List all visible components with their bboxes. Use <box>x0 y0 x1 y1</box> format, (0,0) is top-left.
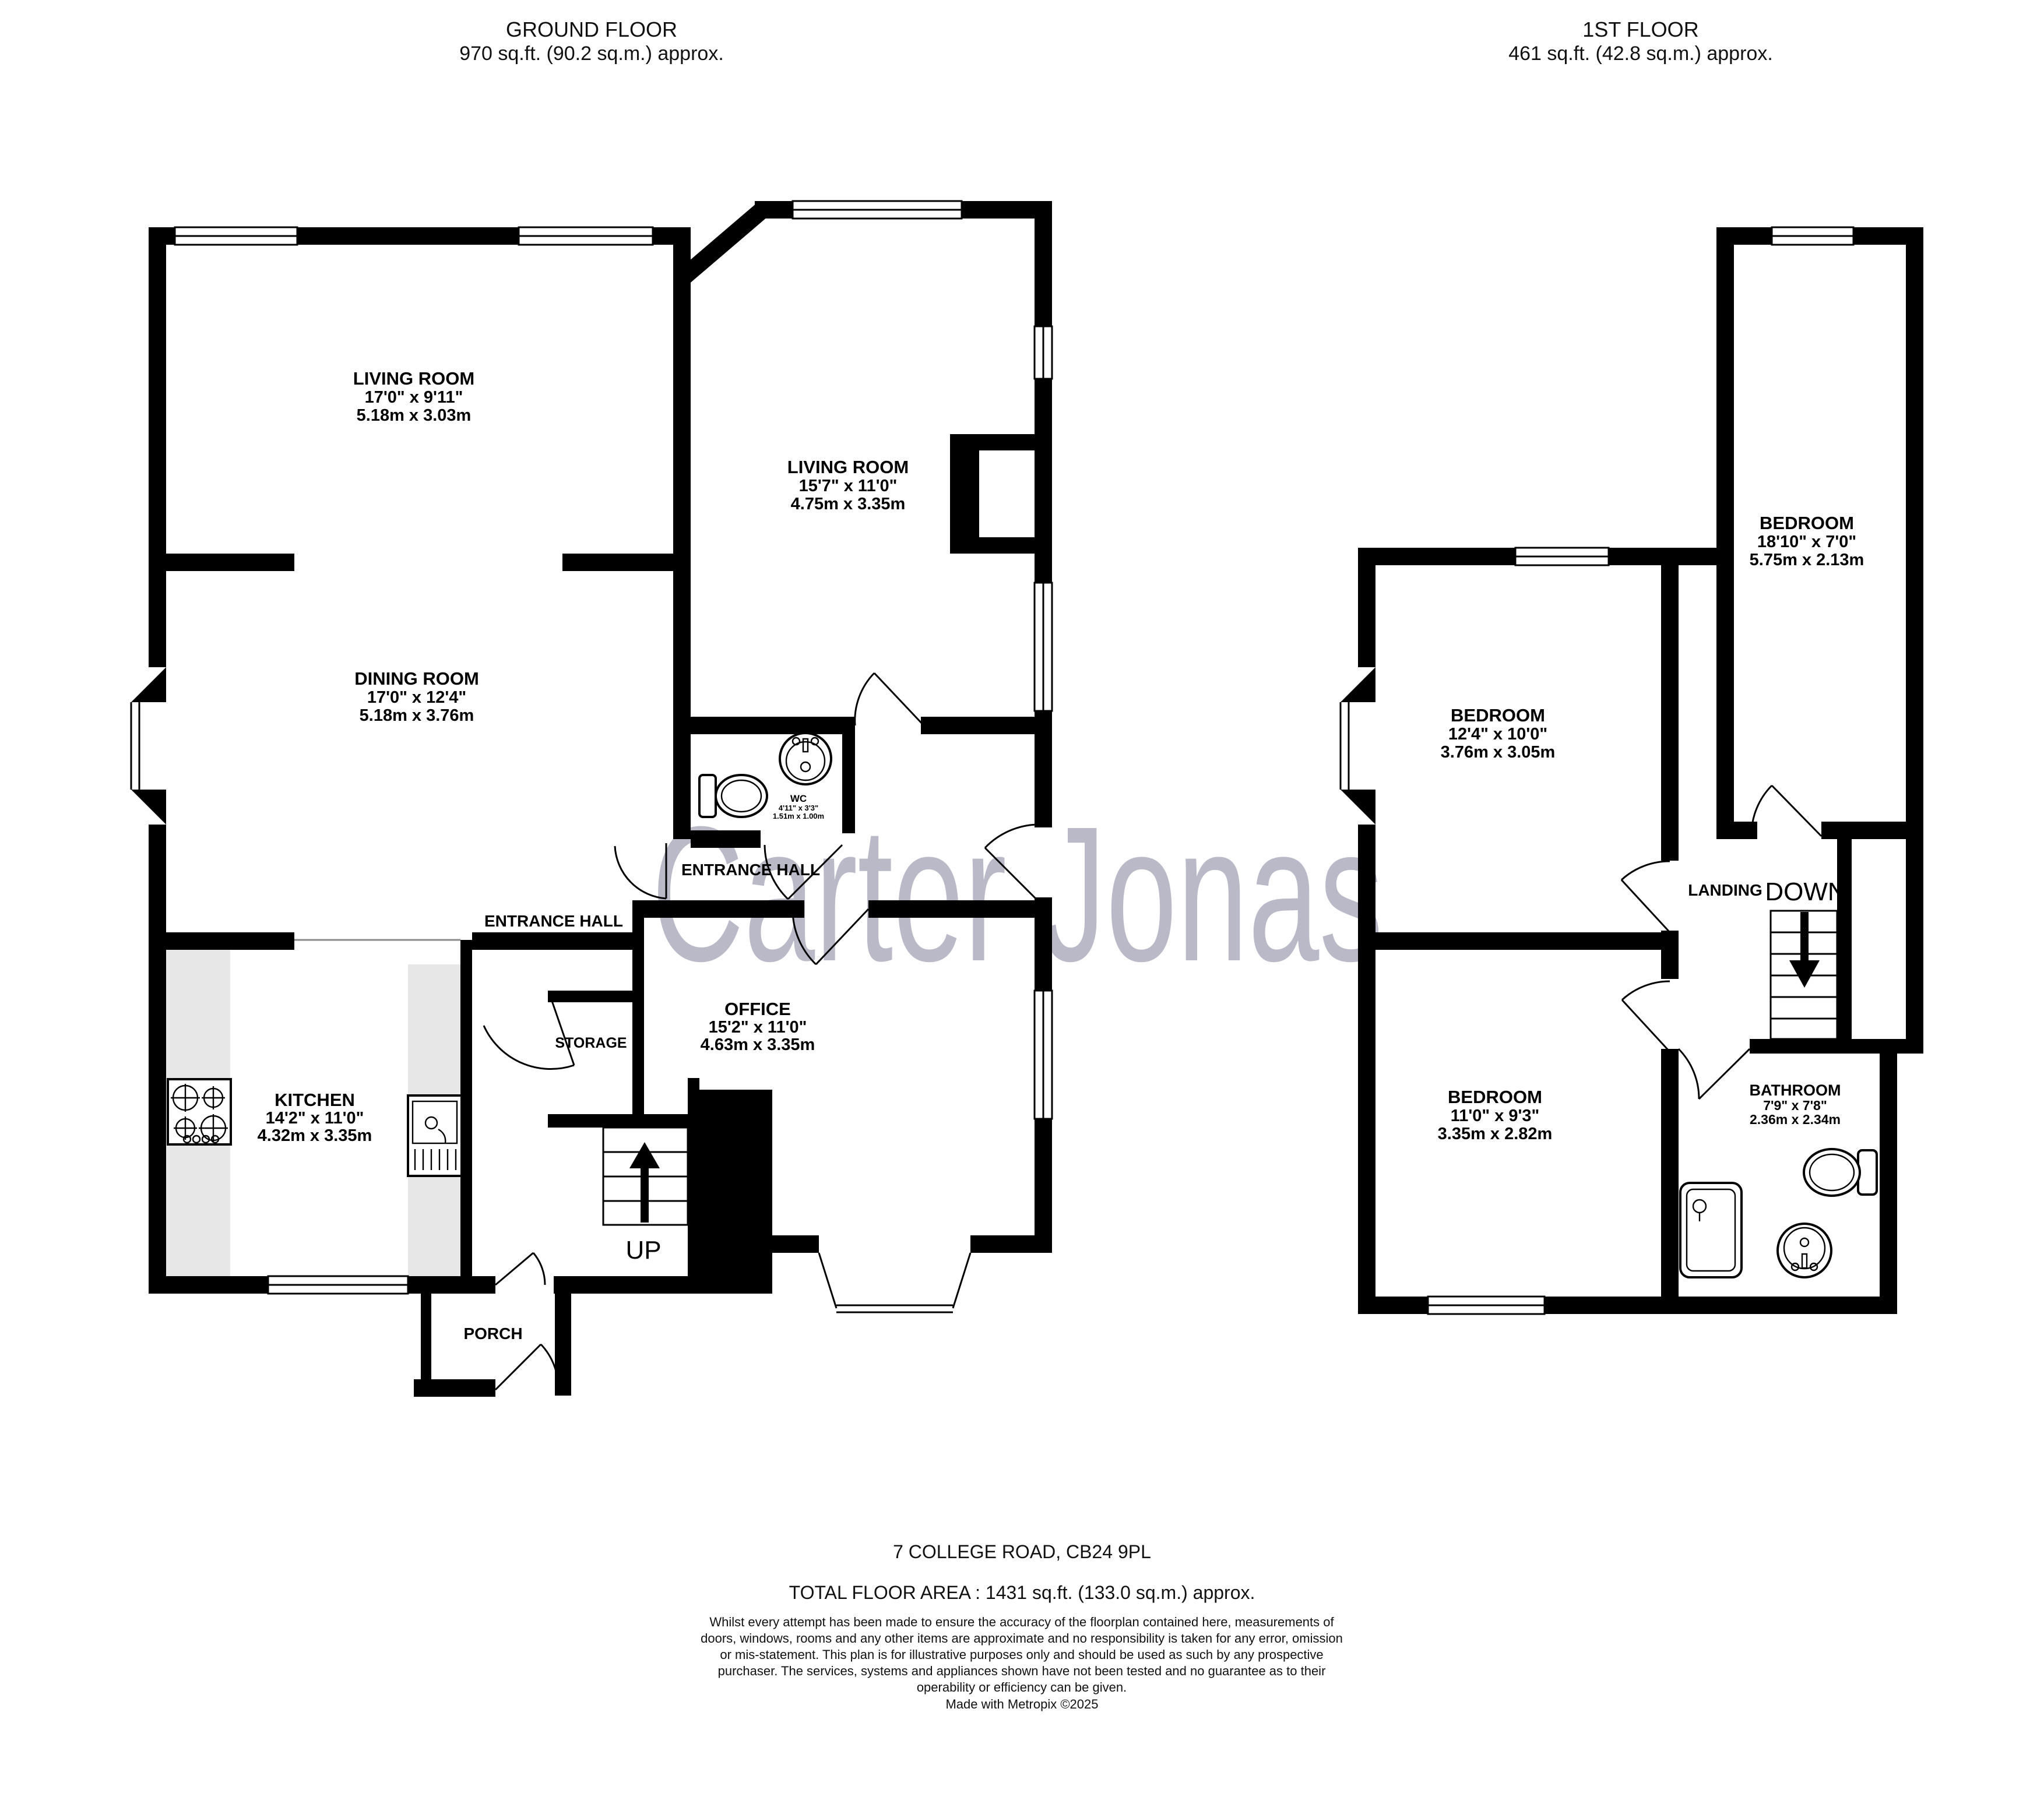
label-kitchen-imperial: 14'2" x 11'0" <box>266 1109 364 1128</box>
label-bedroom-right-imperial: 18'10" x 7'0" <box>1757 533 1856 551</box>
label-bedroom-bottom-metric: 3.35m x 2.82m <box>1438 1125 1553 1143</box>
label-office-name: OFFICE <box>724 999 791 1019</box>
label-bedroom-bottom-name: BEDROOM <box>1448 1087 1542 1107</box>
bay-window-dining <box>131 667 166 825</box>
shower-icon <box>1680 1183 1742 1277</box>
label-porch: PORCH <box>463 1325 522 1343</box>
label-living-room-right-name: LIVING ROOM <box>787 457 909 477</box>
label-stairs-down: DOWN <box>1765 878 1846 906</box>
label-entrance-hall-left: ENTRANCE HALL <box>484 912 623 930</box>
stairs-up <box>603 1128 688 1225</box>
label-office-imperial: 15'2" x 11'0" <box>709 1018 807 1037</box>
watermark: Carter Jonas <box>652 786 1383 1001</box>
label-kitchen-name: KITCHEN <box>275 1090 355 1110</box>
label-landing: LANDING <box>1688 881 1762 899</box>
label-stairs-up: UP <box>625 1236 661 1264</box>
bathroom-toilet-icon <box>1804 1149 1877 1196</box>
label-bathroom-name: BATHROOM <box>1750 1082 1841 1099</box>
label-living-room-right-imperial: 15'7" x 11'0" <box>799 477 898 495</box>
label-entrance-hall-right: ENTRANCE HALL <box>681 861 820 879</box>
label-dining-room-metric: 5.18m x 3.76m <box>360 706 474 725</box>
first-floor-plan: BEDROOM 18'10" x 7'0" 5.75m x 2.13m BEDR… <box>1341 227 1923 1314</box>
bay-window-office <box>819 1253 970 1312</box>
disclaimer: Whilst every attempt has been made to en… <box>695 1614 1348 1696</box>
label-bedroom-middle-imperial: 12'4" x 10'0" <box>1448 725 1547 744</box>
kitchen-sink-icon <box>408 1095 462 1176</box>
up-arrow-icon <box>641 1164 649 1223</box>
label-bedroom-right-name: BEDROOM <box>1760 513 1854 533</box>
label-office-metric: 4.63m x 3.35m <box>701 1035 815 1054</box>
wc-sink-icon <box>780 733 831 784</box>
label-bedroom-right-metric: 5.75m x 2.13m <box>1750 551 1864 569</box>
label-bathroom-metric: 2.36m x 2.34m <box>1750 1112 1841 1127</box>
total-floor-area: TOTAL FLOOR AREA : 1431 sq.ft. (133.0 sq… <box>0 1582 2044 1604</box>
floorplan-page: GROUND FLOOR 970 sq.ft. (90.2 sq.m.) app… <box>0 0 2044 1793</box>
floorplan-drawing: Carter Jonas <box>0 0 2044 1793</box>
label-bedroom-bottom-imperial: 11'0" x 9'3" <box>1451 1107 1540 1125</box>
label-storage: STORAGE <box>555 1035 627 1051</box>
label-wc-name: WC <box>790 793 807 804</box>
label-living-room-right-metric: 4.75m x 3.35m <box>791 495 906 513</box>
address: 7 COLLEGE ROAD, CB24 9PL <box>0 1541 2044 1563</box>
label-bedroom-middle-name: BEDROOM <box>1451 705 1545 725</box>
stairs-down <box>1771 911 1837 1039</box>
label-dining-room-imperial: 17'0" x 12'4" <box>367 688 466 707</box>
bathroom-sink-icon <box>1778 1224 1831 1277</box>
wc-toilet-icon <box>699 775 767 817</box>
down-arrow-icon <box>1800 912 1809 964</box>
label-wc-imperial: 4'11" x 3'3" <box>779 804 818 812</box>
label-living-room-left-imperial: 17'0" x 9'11" <box>365 388 463 407</box>
label-kitchen-metric: 4.32m x 3.35m <box>258 1126 372 1145</box>
label-wc-metric: 1.51m x 1.00m <box>773 812 824 820</box>
label-living-room-left-metric: 5.18m x 3.03m <box>357 406 472 425</box>
label-dining-room-name: DINING ROOM <box>354 668 479 689</box>
credit: Made with Metropix ©2025 <box>0 1697 2044 1712</box>
hob-icon <box>168 1079 231 1144</box>
first-windows <box>1428 227 1853 1314</box>
label-bedroom-middle-metric: 3.76m x 3.05m <box>1441 743 1556 762</box>
label-bathroom-imperial: 7'9" x 7'8" <box>1763 1098 1827 1113</box>
label-living-room-left-name: LIVING ROOM <box>353 368 474 389</box>
